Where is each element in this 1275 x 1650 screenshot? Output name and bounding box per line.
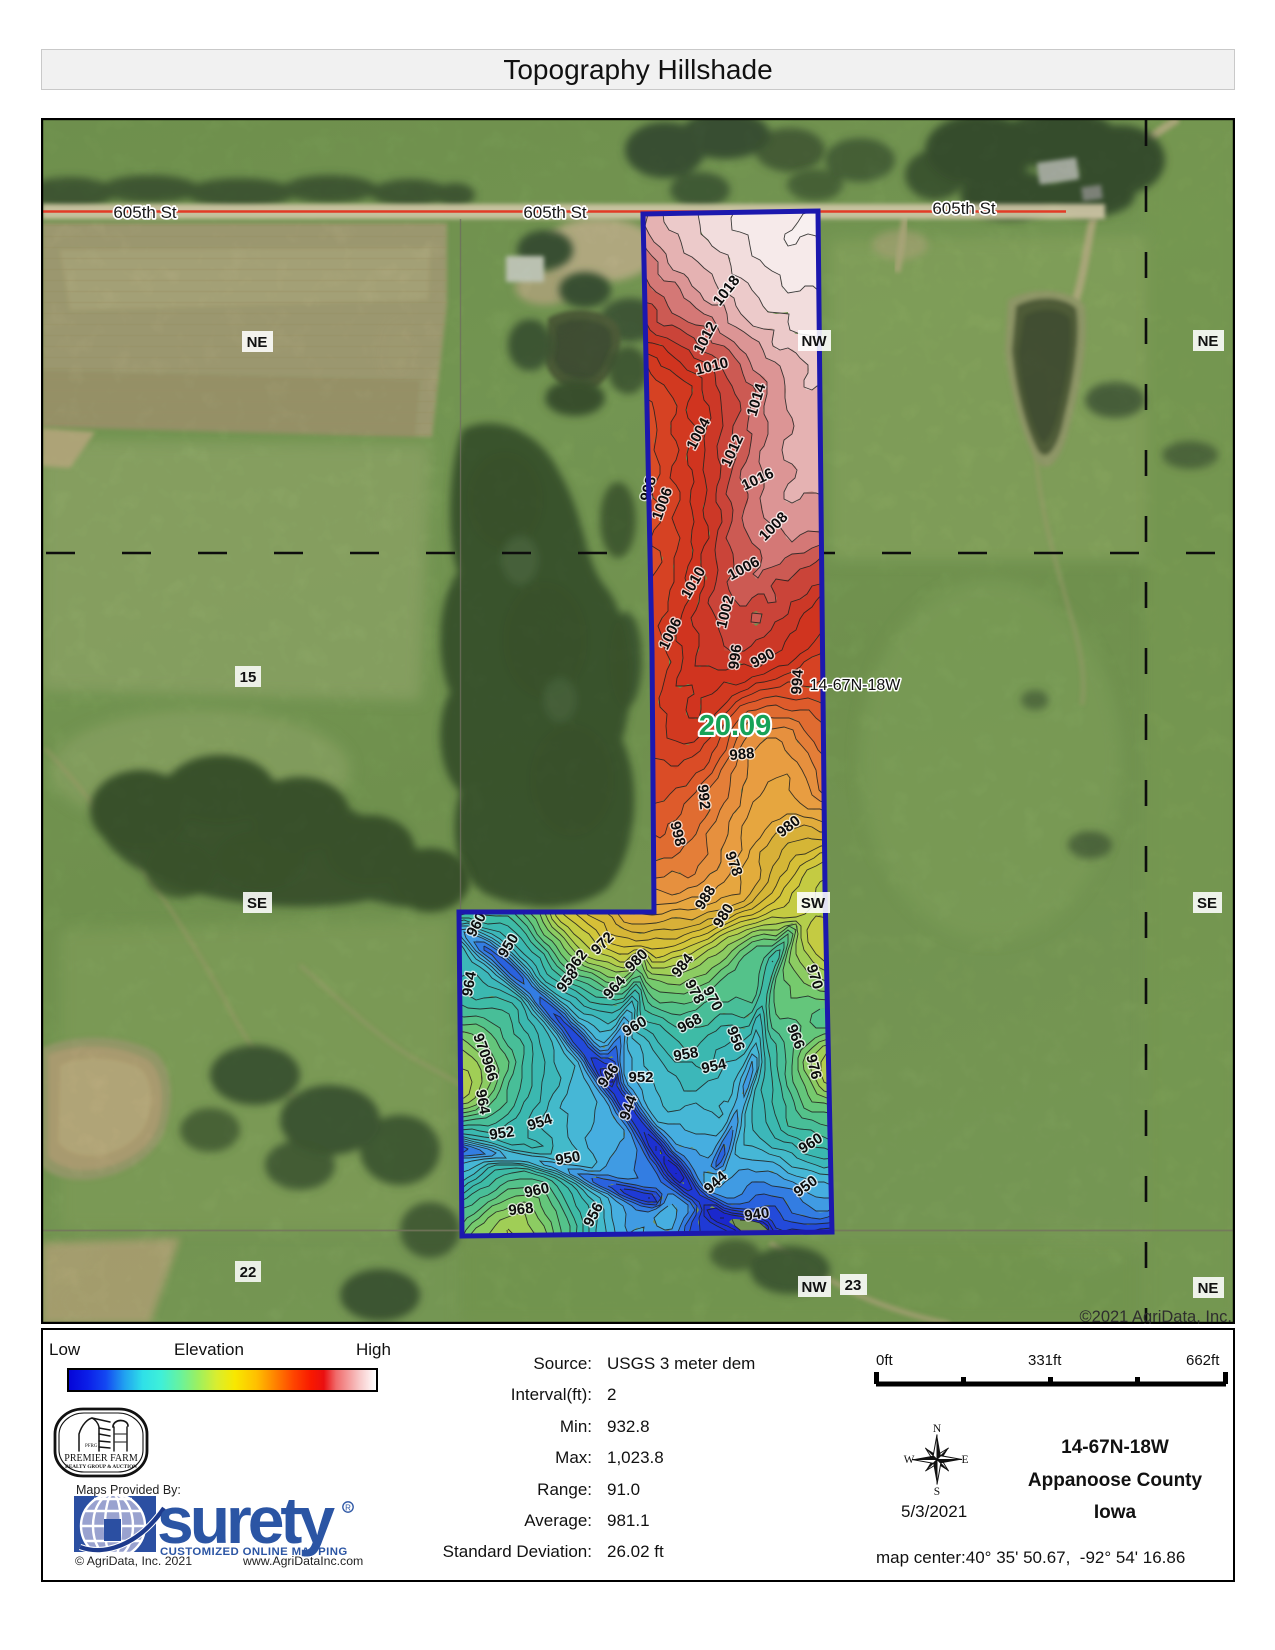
svg-text:20.09: 20.09 <box>699 710 772 742</box>
svg-text:SE: SE <box>247 895 267 912</box>
svg-text:952: 952 <box>628 1069 653 1086</box>
svg-text:952: 952 <box>488 1123 515 1143</box>
svg-text:SW: SW <box>801 895 826 912</box>
svg-text:968: 968 <box>508 1200 535 1220</box>
svg-text:S: S <box>934 1486 940 1498</box>
svg-text:23: 23 <box>845 1277 862 1294</box>
svg-text:NW: NW <box>802 1279 828 1296</box>
svg-text:14-67N-18W: 14-67N-18W <box>810 677 902 694</box>
svg-text:988: 988 <box>729 745 755 764</box>
svg-text:N: N <box>933 1423 942 1435</box>
svg-text:996: 996 <box>725 643 745 670</box>
svg-text:15: 15 <box>240 669 257 686</box>
svg-text:605th St: 605th St <box>932 199 996 218</box>
svg-text:NE: NE <box>1198 333 1219 350</box>
svg-text:940: 940 <box>743 1204 770 1224</box>
svg-text:NE: NE <box>1198 1280 1219 1297</box>
svg-text:PFRG: PFRG <box>85 1444 98 1449</box>
svg-text:605th St: 605th St <box>113 203 177 222</box>
svg-text:994: 994 <box>788 668 807 695</box>
svg-text:©2021 AgriData, Inc.: ©2021 AgriData, Inc. <box>1080 1308 1233 1324</box>
svg-text:992: 992 <box>694 784 714 811</box>
svg-text:NW: NW <box>802 333 828 350</box>
svg-text:22: 22 <box>240 1264 257 1281</box>
svg-text:605th St: 605th St <box>523 203 587 222</box>
svg-text:REALTY GROUP & AUCTION: REALTY GROUP & AUCTION <box>65 1464 137 1470</box>
svg-text:PREMIER FARM: PREMIER FARM <box>64 1453 138 1464</box>
svg-text:SE: SE <box>1197 895 1217 912</box>
svg-text:E: E <box>961 1454 968 1466</box>
svg-text:NE: NE <box>247 334 268 351</box>
